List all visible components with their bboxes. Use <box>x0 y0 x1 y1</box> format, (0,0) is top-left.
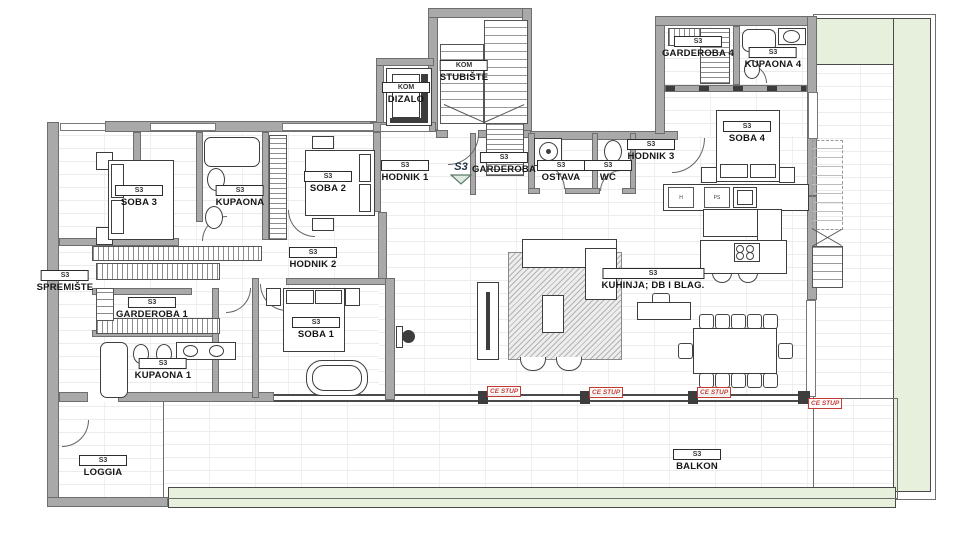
tv <box>486 292 490 350</box>
kitchen-sink-inner <box>737 190 753 205</box>
wall <box>733 26 740 85</box>
wardrobe-hodnik2 <box>92 246 262 261</box>
room-label-garderoba1: S3 GARDEROBA 1 <box>116 297 188 320</box>
wall <box>528 188 540 194</box>
room-code: S3 <box>289 247 337 258</box>
room-name: GARDEROBA <box>472 164 536 175</box>
window <box>282 123 374 131</box>
column-tag: CE STUP <box>589 387 623 398</box>
room-label-soba2: S3 SOBA 2 <box>304 171 352 194</box>
wall <box>252 278 259 398</box>
room-name: GARDEROBA 1 <box>116 309 188 320</box>
room-code: S3 <box>292 317 340 328</box>
room-label-hodnik3: S3 HODNIK 3 <box>627 139 675 162</box>
window <box>806 300 816 397</box>
wall <box>286 278 392 285</box>
entrance-arrow-icon <box>450 174 472 185</box>
room-name: LOGGIA <box>84 467 123 478</box>
column-tag-text: CE STUP <box>592 389 620 396</box>
room-code: KOM <box>440 60 488 71</box>
room-code: S3 <box>480 152 528 163</box>
room-name: BALKON <box>676 461 718 472</box>
pillow <box>286 290 314 304</box>
room-label-soba1: S3 SOBA 1 <box>292 317 340 340</box>
wardrobe-soba2 <box>269 135 287 240</box>
entrance-label: S3 <box>454 162 467 173</box>
cabinet-h: H <box>668 187 694 208</box>
nightstand <box>312 218 334 231</box>
pillow <box>359 154 371 182</box>
pillow <box>359 184 371 212</box>
room-label-balkon: S3 BALKON <box>673 449 721 472</box>
room-name: KUPAONA 4 <box>745 59 802 70</box>
room-label-dizalo: KOM DIZALO <box>382 82 430 105</box>
wall <box>655 16 665 134</box>
burner <box>736 252 744 260</box>
cabinet-ps-label: PS <box>714 195 721 201</box>
wall <box>436 130 448 138</box>
room-label-kupaona1: S3 KUPAONA 1 <box>135 358 192 381</box>
room-label-kuhinja: S3 KUHINJA; DB I BLAG. <box>601 268 704 291</box>
window <box>60 123 106 131</box>
chair <box>747 373 762 388</box>
column-tag-text: CE STUP <box>700 389 728 396</box>
sink <box>783 30 800 43</box>
chair <box>763 373 778 388</box>
room-name: SOBA 4 <box>729 133 765 144</box>
room-label-soba3: S3 SOBA 3 <box>115 185 163 208</box>
wall <box>378 212 387 280</box>
room-code: KOM <box>382 82 430 93</box>
room-name: HODNIK 3 <box>628 151 675 162</box>
planter-top-right <box>815 18 895 65</box>
wall <box>565 188 600 194</box>
room-label-kupaona4: S3 KUPAONA 4 <box>745 47 802 70</box>
dining-table <box>693 328 777 374</box>
room-name: STUBIŠTE <box>440 72 489 83</box>
cabinet-h-label: H <box>679 195 683 201</box>
chair <box>678 343 693 359</box>
balcony-outline <box>163 398 898 499</box>
kitchen-counter <box>757 209 782 242</box>
chair <box>747 314 762 329</box>
washing-machine-center <box>546 149 551 154</box>
console-table <box>637 302 691 320</box>
wardrobe-garderoba1-top <box>96 263 220 280</box>
column-tag-text: CE STUP <box>811 400 839 407</box>
room-label-ostava: S3 OSTAVA <box>537 160 585 183</box>
window <box>150 123 216 131</box>
room-code: S3 <box>537 160 585 171</box>
room-code: S3 <box>749 47 797 58</box>
room-code: S3 <box>723 121 771 132</box>
floor-plan: H PS S3 SPREMIŠTE S3 SOBA 3 S3 KUPAONA S… <box>0 0 960 533</box>
wall <box>47 497 168 507</box>
entrance-marker: S3 <box>450 162 472 185</box>
wall <box>118 392 274 402</box>
room-code: S3 <box>584 160 632 171</box>
room-label-wc: S3 WC <box>584 160 632 183</box>
room-code: S3 <box>79 455 127 466</box>
room-code: S3 <box>673 449 721 460</box>
room-label-garderoba4: S3 GARDEROBA 4 <box>662 36 734 59</box>
room-label-spremiste: S3 SPREMIŠTE <box>37 270 94 293</box>
chair <box>715 373 730 388</box>
bathtub-kupaona1 <box>100 342 128 398</box>
column-tag: CE STUP <box>808 398 842 409</box>
room-code: S3 <box>216 185 264 196</box>
nightstand <box>312 136 334 149</box>
coffee-table <box>542 295 564 333</box>
room-code: S3 <box>128 297 176 308</box>
chair <box>763 314 778 329</box>
room-label-garderoba: S3 GARDEROBA <box>472 152 536 175</box>
room-name: SOBA 1 <box>298 329 334 340</box>
sink <box>205 206 223 229</box>
room-code: S3 <box>41 270 89 281</box>
cabinet-ps: PS <box>704 187 730 208</box>
room-code: S3 <box>115 185 163 196</box>
room-name: OSTAVA <box>542 172 581 183</box>
wall <box>385 278 395 400</box>
pillow <box>315 290 342 304</box>
room-code: S3 <box>602 268 704 279</box>
room-name: KUPAONA 1 <box>135 370 192 381</box>
room-label-kupaona: S3 KUPAONA <box>216 185 265 208</box>
room-code: S3 <box>674 36 722 47</box>
sink <box>183 345 198 357</box>
chair <box>731 314 746 329</box>
room-label-stubiste: KOM STUBIŠTE <box>440 60 489 83</box>
room-name: SOBA 2 <box>310 183 346 194</box>
bathtub-inner <box>312 365 362 391</box>
chair <box>715 314 730 329</box>
room-name: SPREMIŠTE <box>37 282 94 293</box>
column-tag: CE STUP <box>487 386 521 397</box>
room-name: HODNIK 1 <box>382 172 429 183</box>
shelf-garderoba1 <box>96 288 114 321</box>
wall <box>196 132 203 222</box>
nightstand <box>779 167 795 183</box>
room-name: GARDEROBA 4 <box>662 48 734 59</box>
room-label-soba4: S3 SOBA 4 <box>723 121 771 144</box>
room-name: DIZALO <box>388 94 425 105</box>
window <box>808 92 818 139</box>
wall <box>59 392 88 402</box>
wall-unit <box>396 326 403 348</box>
room-name: SOBA 3 <box>121 197 157 208</box>
wall <box>665 85 807 92</box>
room-label-hodnik2: S3 HODNIK 2 <box>289 247 337 270</box>
sink <box>209 345 224 357</box>
floor-loggia <box>59 402 164 497</box>
column-tag: CE STUP <box>697 387 731 398</box>
nightstand <box>266 288 281 306</box>
burner <box>746 252 754 260</box>
room-code: S3 <box>139 358 187 369</box>
room-code: S3 <box>304 171 352 182</box>
chair <box>699 314 714 329</box>
room-code: S3 <box>381 160 429 171</box>
room-name: WC <box>600 172 616 183</box>
nightstand <box>701 167 717 183</box>
exterior-stair-lower <box>812 246 843 288</box>
wall <box>47 122 59 507</box>
nightstand <box>345 288 360 306</box>
room-label-hodnik1: S3 HODNIK 1 <box>381 160 429 183</box>
chair <box>731 373 746 388</box>
room-name: KUHINJA; DB I BLAG. <box>601 280 704 291</box>
room-name: HODNIK 2 <box>290 259 337 270</box>
chair <box>699 373 714 388</box>
room-label-loggia: S3 LOGGIA <box>79 455 127 478</box>
room-code: S3 <box>627 139 675 150</box>
column-tag-text: CE STUP <box>490 388 518 395</box>
planter-right <box>893 18 931 492</box>
pillow <box>750 164 776 178</box>
exterior-stair-upper <box>812 140 843 230</box>
wardrobe-garderoba1-bottom <box>96 318 220 334</box>
wall <box>655 16 817 26</box>
room-name: KUPAONA <box>216 197 265 208</box>
wall <box>428 8 532 18</box>
floor-lamp <box>402 330 415 343</box>
wall <box>376 58 434 66</box>
elevator-door <box>390 118 428 123</box>
staircase <box>484 20 528 124</box>
wall <box>622 188 636 194</box>
chair <box>778 343 793 359</box>
bathtub-kupaona <box>204 137 260 167</box>
pillow <box>720 164 748 178</box>
